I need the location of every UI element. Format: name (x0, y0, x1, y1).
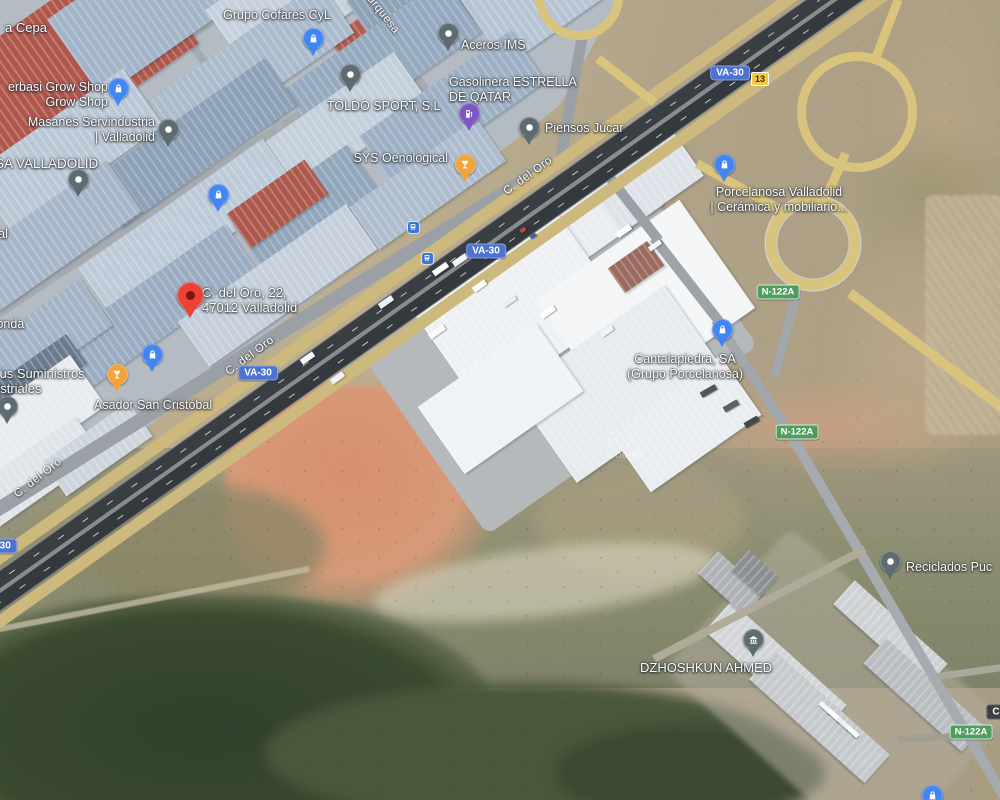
sys-oenological-label[interactable]: SYS Oenological (353, 151, 448, 166)
transit-bus-stop-1[interactable] (408, 222, 419, 233)
pale-dirt-right (822, 240, 1000, 475)
aceros-ims-label[interactable]: Aceros IMS (461, 38, 526, 53)
dirt-track (0, 566, 310, 633)
dzhoshkun-ahmed-marker[interactable] (743, 629, 764, 650)
sa-valladolid-marker[interactable] (68, 169, 89, 190)
vehicle-7 (378, 295, 395, 309)
route-badge-n122a-1: N-122A (757, 285, 800, 300)
gasolinera-estrella-label[interactable]: Gasolinera ESTRELLADE QATAR (449, 75, 577, 105)
route-badge-exit-13: 13 (751, 72, 769, 86)
la-cepa-label[interactable]: a Cepa (5, 20, 47, 35)
cantalapiedra-sa-label[interactable]: Cantalapiedra, SA(Grupo Porcelanosa) (627, 352, 743, 382)
reciclados-marker[interactable] (880, 551, 901, 572)
ramp-2 (847, 289, 1000, 420)
jesus-suministros-label[interactable]: sús Suministrosustriales (0, 366, 85, 396)
toldo-sport-marker[interactable] (340, 64, 361, 85)
vehicle-10 (300, 351, 316, 365)
porcelanosa-valladolid-label[interactable]: Porcelanosa Valladolid| Cerámica y mobil… (710, 185, 847, 215)
destination-c-del-oro-22-marker[interactable] (177, 282, 204, 309)
dzhoshkun-ahmed-label[interactable]: DZHOSHKUN AHMED (640, 660, 772, 675)
pale-cliffs (369, 527, 720, 637)
vehicle-11 (330, 371, 346, 385)
road-8 (938, 663, 1000, 680)
route-badge-n122a-2: N-122A (776, 425, 819, 440)
grupo-cofares-label[interactable]: Grupo Cofares CyL (223, 8, 331, 23)
grow-shop-label[interactable]: erbasi Grow ShopGrow Shop (8, 80, 108, 110)
ramp-3 (872, 0, 903, 59)
pine-forest-left (0, 595, 495, 800)
route-badge-va30-edge: VA-30 (0, 539, 17, 554)
ramp-4 (595, 54, 657, 105)
transit-bus-stop-2[interactable] (422, 253, 433, 264)
rotonda-partial-label[interactable]: tonda (0, 317, 24, 332)
shop-marker-bottom-edge-marker[interactable] (922, 785, 943, 800)
street-label-c-del-oro-1: C. del Oro (501, 154, 554, 197)
ramp-loop (797, 52, 917, 172)
route-badge-n122a-3: N-122A (950, 725, 993, 740)
porcelanosa-valladolid-marker[interactable] (714, 154, 735, 175)
destination-c-del-oro-22-label[interactable]: C. del Oro, 22,47012 Valladolid (202, 285, 297, 315)
aceros-ims-marker[interactable] (438, 23, 459, 44)
asador-san-cristobal-marker[interactable] (107, 364, 128, 385)
ral-partial-label[interactable]: ral (0, 227, 8, 242)
reciclados-label[interactable]: Reciclados Puc (906, 560, 992, 575)
map-canvas[interactable]: C. del OroC. del OroC. del OroTurquesaLO… (0, 0, 1000, 800)
route-badge-va30-low: VA-30 (238, 366, 278, 381)
route-badge-va30-mid: VA-30 (466, 244, 506, 259)
jesus-suministros-marker[interactable] (0, 396, 18, 417)
sa-valladolid-label[interactable]: SA VALLADOLID (0, 156, 98, 171)
masanes-servindustria-marker[interactable] (158, 119, 179, 140)
vehicle-0 (432, 262, 449, 277)
road-6 (770, 287, 803, 378)
dirt-patch-1 (75, 485, 325, 610)
google-watermark: © 2022 Google (607, 425, 644, 461)
shop-marker-1-marker[interactable] (208, 184, 229, 205)
masanes-servindustria-label[interactable]: Masanés Servindustria| Valladolid (28, 115, 155, 145)
grupo-cofares-marker[interactable] (303, 28, 324, 49)
sys-oenological-marker[interactable] (455, 154, 476, 175)
gasolinera-estrella-marker[interactable] (459, 103, 480, 124)
route-badge-c-street-partial: C (986, 705, 1000, 720)
route-badge-va30-top: VA-30 (710, 66, 750, 81)
toldo-sport-label[interactable]: TOLDO SPORT, S.L (327, 99, 440, 114)
piensos-jucar-label[interactable]: Piensos Júcar (545, 121, 624, 136)
asador-san-cristobal-label[interactable]: Asador San Cristóbal (94, 398, 212, 413)
grow-shop-marker[interactable] (108, 78, 129, 99)
shop-marker-2-marker[interactable] (142, 344, 163, 365)
cantalapiedra-sa-marker[interactable] (712, 319, 733, 340)
piensos-jucar-marker[interactable] (519, 117, 540, 138)
